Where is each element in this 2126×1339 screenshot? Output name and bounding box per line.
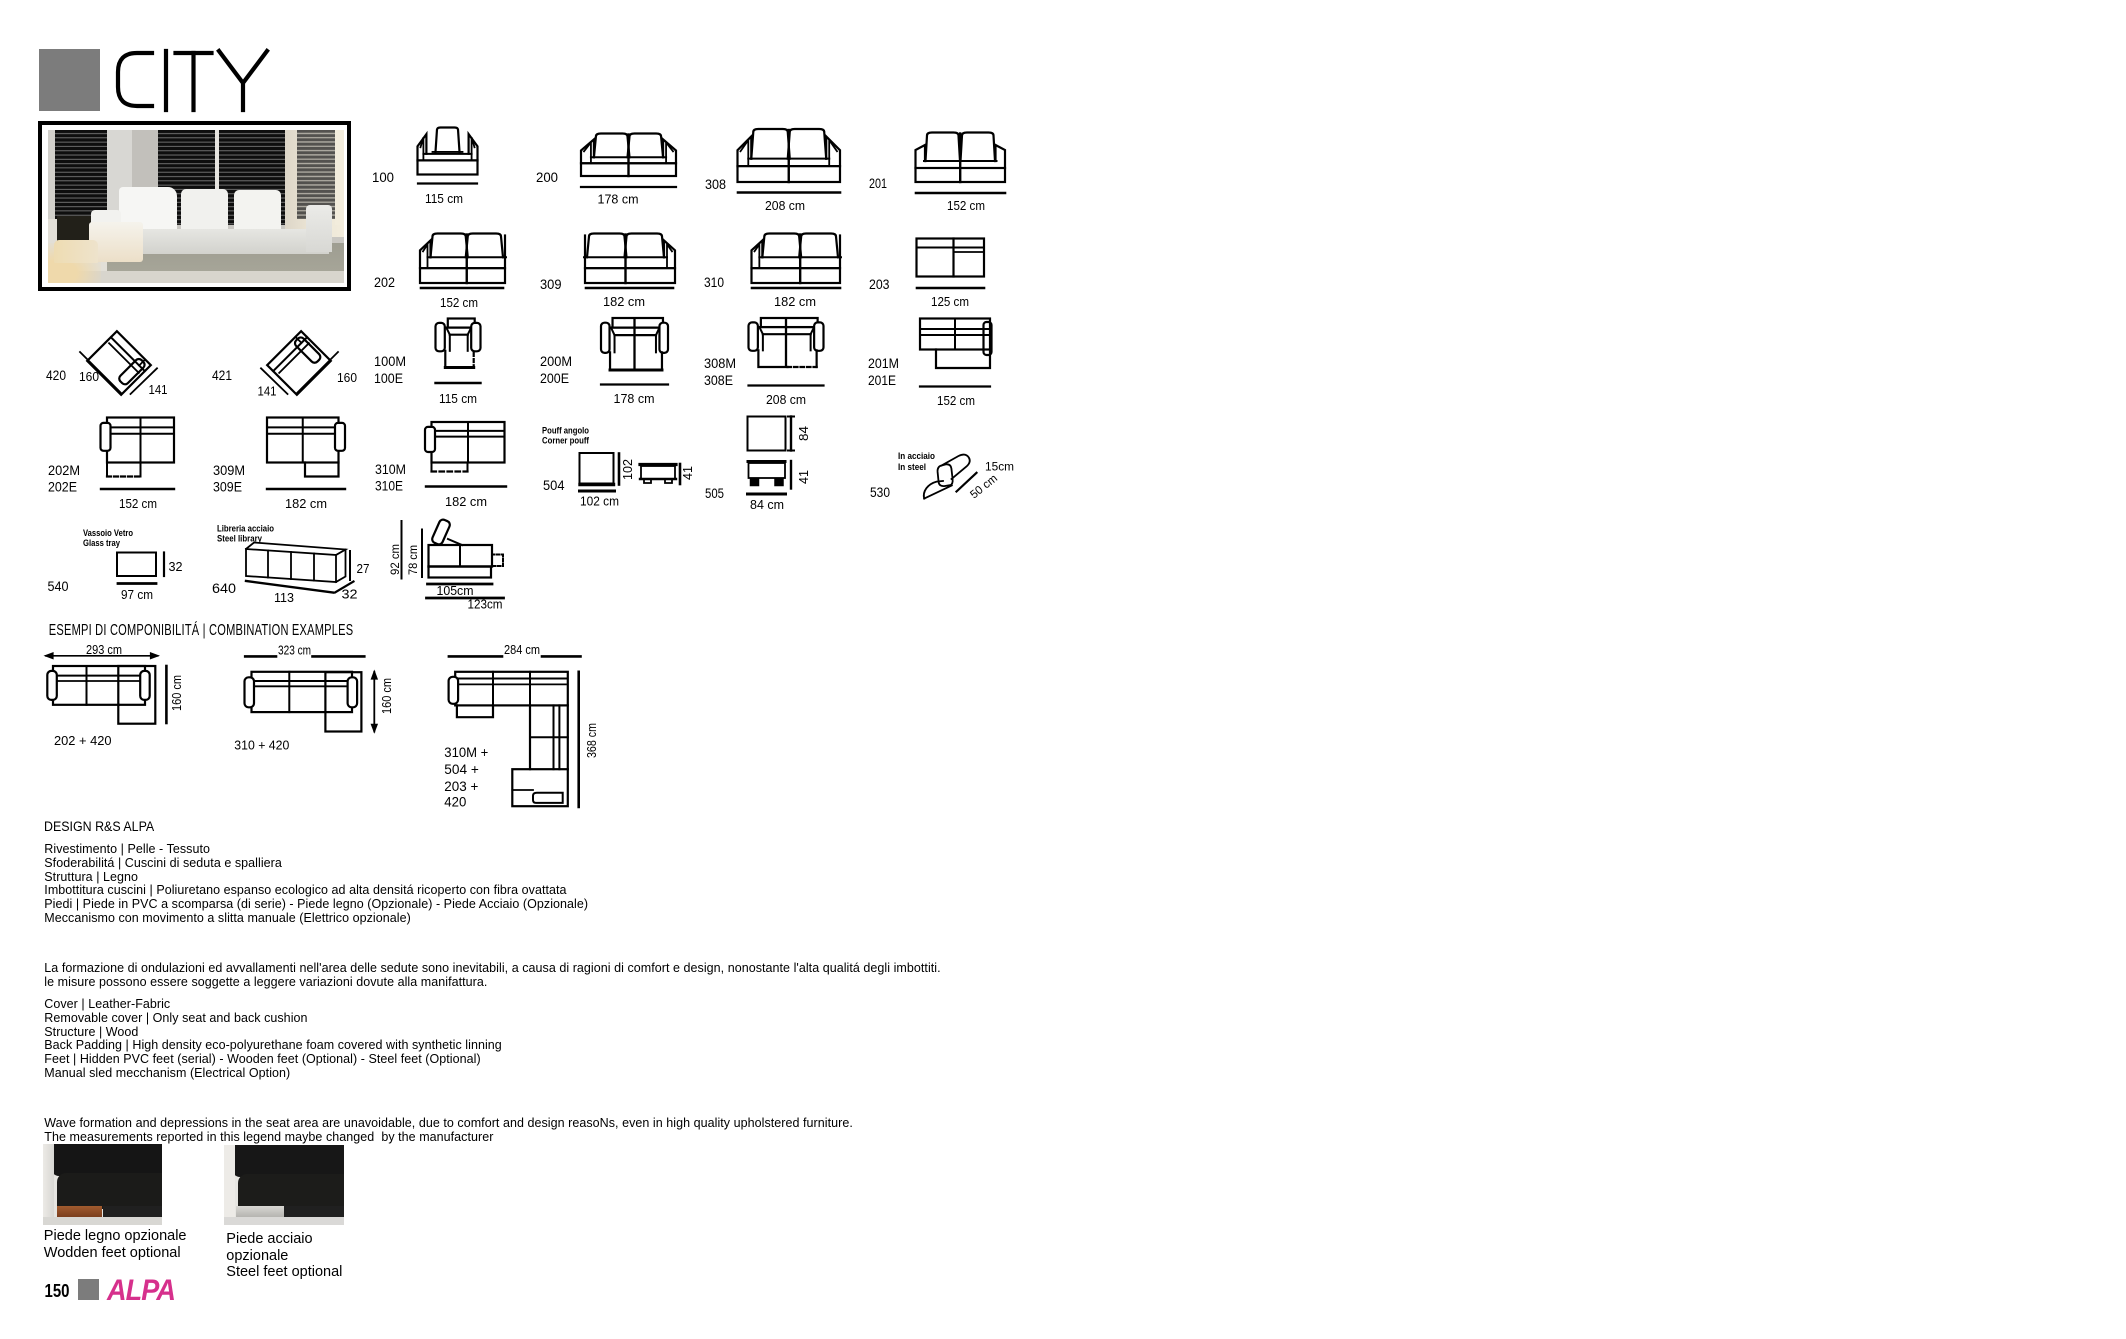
svg-text:84: 84	[796, 426, 811, 441]
svg-text:201: 201	[869, 176, 887, 191]
svg-text:293 cm: 293 cm	[86, 643, 122, 657]
svg-text:41: 41	[680, 466, 695, 480]
svg-text:208 cm: 208 cm	[765, 198, 805, 213]
svg-text:310E: 310E	[375, 479, 403, 494]
svg-text:In acciaio: In acciaio	[898, 451, 935, 461]
svg-text:202 + 420: 202 + 420	[54, 733, 112, 748]
svg-text:ALPA: ALPA	[106, 1274, 175, 1307]
svg-text:201M: 201M	[868, 356, 899, 371]
svg-text:421: 421	[212, 368, 232, 383]
svg-text:78 cm: 78 cm	[408, 545, 420, 575]
svg-text:310 + 420: 310 + 420	[234, 738, 289, 753]
svg-text:Glass tray: Glass tray	[83, 538, 120, 548]
svg-text:182 cm: 182 cm	[445, 494, 487, 509]
svg-text:640: 640	[212, 581, 236, 596]
svg-text:152 cm: 152 cm	[119, 496, 157, 511]
svg-text:323 cm: 323 cm	[278, 644, 311, 658]
svg-text:310: 310	[704, 275, 724, 290]
svg-text:182 cm: 182 cm	[285, 496, 327, 511]
svg-text:504: 504	[543, 478, 565, 493]
svg-text:32: 32	[169, 559, 183, 574]
svg-text:308E: 308E	[704, 373, 733, 388]
svg-text:309: 309	[540, 277, 562, 292]
svg-text:152 cm: 152 cm	[440, 295, 478, 310]
svg-text:368 cm: 368 cm	[585, 723, 599, 758]
svg-text:84 cm: 84 cm	[750, 497, 784, 512]
svg-text:284 cm: 284 cm	[504, 643, 540, 657]
svg-text:Vassoio Vetro: Vassoio Vetro	[83, 528, 133, 538]
svg-text:203: 203	[869, 277, 890, 292]
svg-text:208 cm: 208 cm	[766, 392, 806, 407]
svg-text:420: 420	[46, 368, 66, 383]
svg-text:202M: 202M	[48, 463, 80, 478]
svg-text:141: 141	[149, 382, 168, 397]
svg-text:178 cm: 178 cm	[598, 192, 639, 207]
svg-text:100M: 100M	[374, 354, 406, 369]
svg-text:In steel: In steel	[898, 462, 926, 472]
svg-text:203 +: 203 +	[444, 778, 478, 794]
svg-text:ESEMPI DI COMPONIBILITÁ | COMB: ESEMPI DI COMPONIBILITÁ | COMBINATION EX…	[49, 620, 354, 639]
svg-text:141: 141	[258, 384, 277, 399]
svg-text:200M: 200M	[540, 354, 572, 369]
svg-text:113: 113	[274, 590, 294, 605]
svg-text:32: 32	[342, 587, 358, 602]
svg-text:Corner pouff: Corner pouff	[542, 436, 590, 446]
svg-text:160: 160	[337, 370, 357, 385]
svg-text:308: 308	[705, 177, 726, 192]
svg-text:178 cm: 178 cm	[614, 391, 655, 406]
svg-text:100E: 100E	[374, 371, 403, 386]
svg-text:182 cm: 182 cm	[603, 294, 645, 309]
svg-text:152 cm: 152 cm	[937, 393, 975, 408]
svg-text:309E: 309E	[213, 480, 242, 495]
svg-text:100: 100	[372, 170, 394, 185]
svg-text:92 cm: 92 cm	[390, 544, 402, 575]
svg-text:123cm: 123cm	[468, 598, 503, 612]
svg-text:308M: 308M	[704, 356, 736, 371]
svg-text:505: 505	[705, 486, 724, 501]
svg-text:150: 150	[45, 1280, 70, 1301]
svg-text:27: 27	[357, 561, 370, 576]
svg-text:152 cm: 152 cm	[947, 198, 985, 213]
svg-text:200E: 200E	[540, 371, 569, 386]
svg-text:504 +: 504 +	[444, 761, 479, 777]
svg-text:115 cm: 115 cm	[439, 391, 477, 406]
svg-text:41: 41	[796, 470, 811, 484]
svg-text:309M: 309M	[213, 463, 245, 478]
svg-text:160 cm: 160 cm	[380, 678, 394, 714]
svg-text:Libreria acciaio: Libreria acciaio	[217, 524, 274, 534]
svg-text:115 cm: 115 cm	[425, 191, 463, 206]
svg-text:310M +: 310M +	[444, 744, 488, 760]
svg-text:125 cm: 125 cm	[931, 294, 969, 309]
svg-text:202E: 202E	[48, 480, 77, 495]
svg-text:201E: 201E	[868, 373, 896, 388]
svg-text:182 cm: 182 cm	[774, 294, 816, 309]
svg-text:102: 102	[620, 459, 635, 480]
svg-text:97 cm: 97 cm	[121, 587, 153, 602]
svg-text:102 cm: 102 cm	[580, 494, 619, 509]
svg-text:105cm: 105cm	[437, 584, 474, 598]
svg-text:420: 420	[444, 794, 466, 810]
svg-text:Pouff angolo: Pouff angolo	[542, 426, 589, 436]
svg-text:540: 540	[48, 579, 69, 594]
svg-text:200: 200	[536, 170, 558, 185]
svg-text:160 cm: 160 cm	[170, 675, 184, 711]
svg-text:160: 160	[79, 369, 99, 384]
svg-text:530: 530	[870, 485, 890, 500]
svg-text:310M: 310M	[375, 462, 406, 477]
svg-text:15cm: 15cm	[985, 462, 1014, 474]
svg-text:202: 202	[374, 275, 395, 290]
